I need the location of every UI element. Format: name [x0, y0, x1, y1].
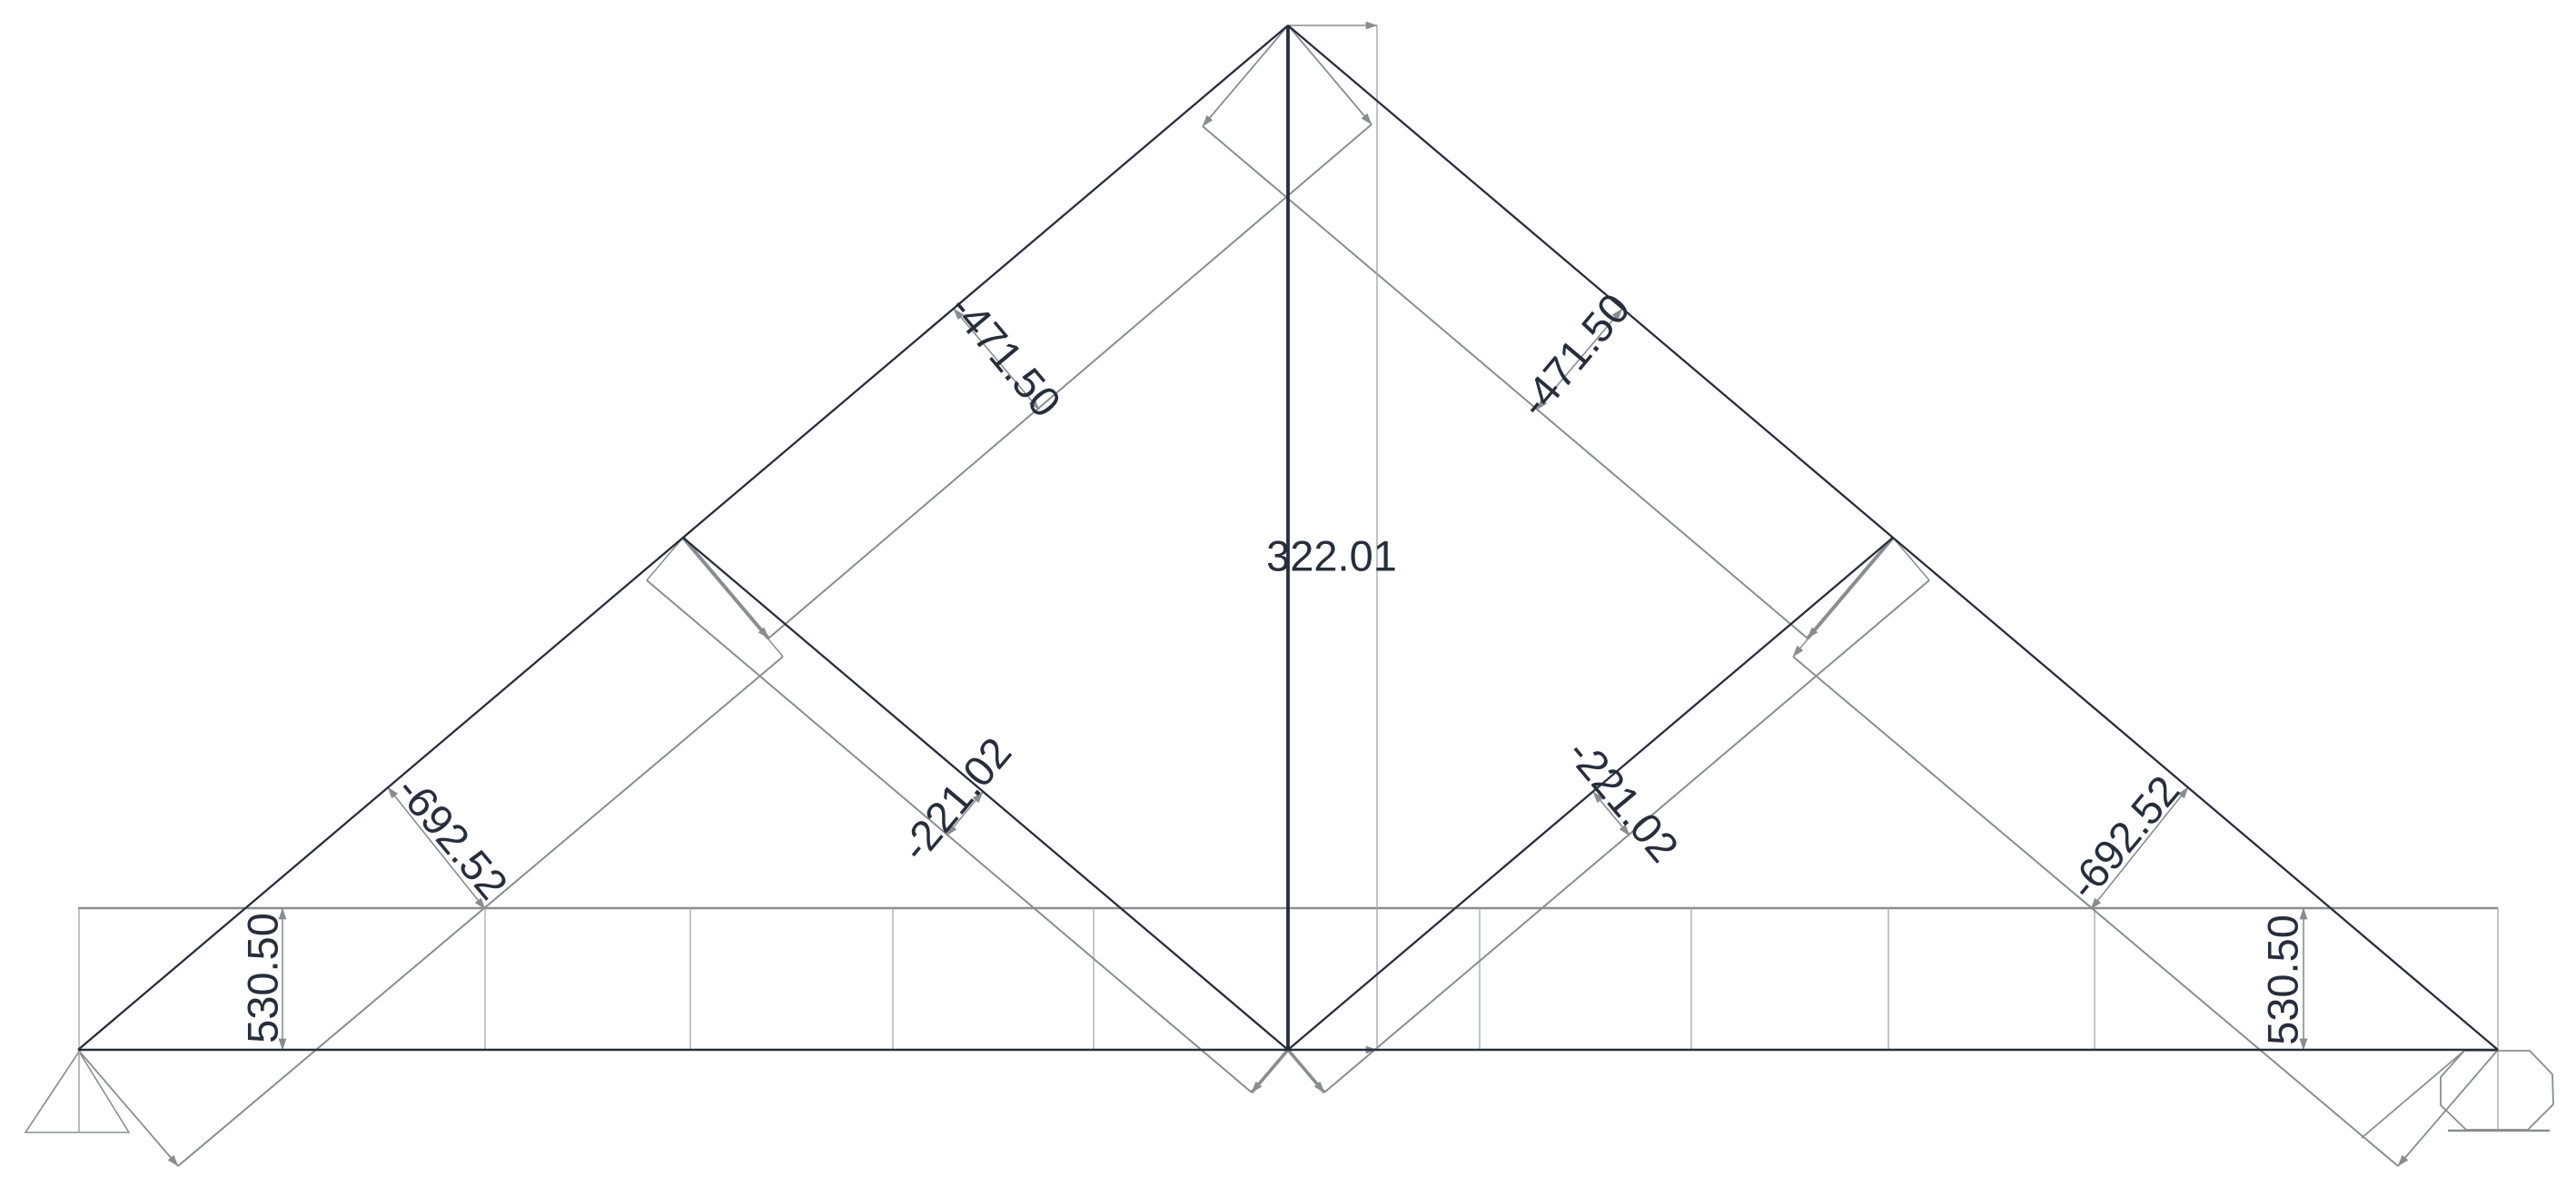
force-label-strut-left: -221.02	[890, 728, 1020, 870]
truss-axial-force-diagram: -471.50 -471.50 -692.52 -692.52 -221.02 …	[0, 0, 2576, 1196]
force-label-top-chord-upper-right: -471.50	[1509, 284, 1639, 426]
offset-line-top-chord-lower-left	[178, 657, 783, 1166]
offset-line-top-chord-lower-right	[1793, 657, 2398, 1166]
force-label-bottom-chord-left: 530.50	[238, 913, 286, 1043]
roller-circle	[2441, 1051, 2553, 1130]
force-label-top-chord-upper-left: -471.50	[941, 284, 1071, 426]
force-label-king-post: 322.01	[1266, 531, 1397, 579]
force-labels: -471.50 -471.50 -692.52 -692.52 -221.02 …	[238, 284, 2306, 1045]
roller-support-right	[2362, 1051, 2553, 1138]
force-label-top-chord-lower-right: -692.52	[2058, 766, 2188, 908]
truss-analysis-view: -471.50 -471.50 -692.52 -692.52 -221.02 …	[0, 0, 2576, 1196]
force-band-dividers	[485, 908, 2095, 1050]
force-label-top-chord-lower-left: -692.52	[388, 766, 518, 908]
roller-plane-stroke	[2362, 1051, 2464, 1138]
label-dimension-lines	[282, 309, 2304, 1050]
force-label-bottom-chord-right: 530.50	[2258, 914, 2306, 1045]
supports	[25, 1051, 2553, 1138]
